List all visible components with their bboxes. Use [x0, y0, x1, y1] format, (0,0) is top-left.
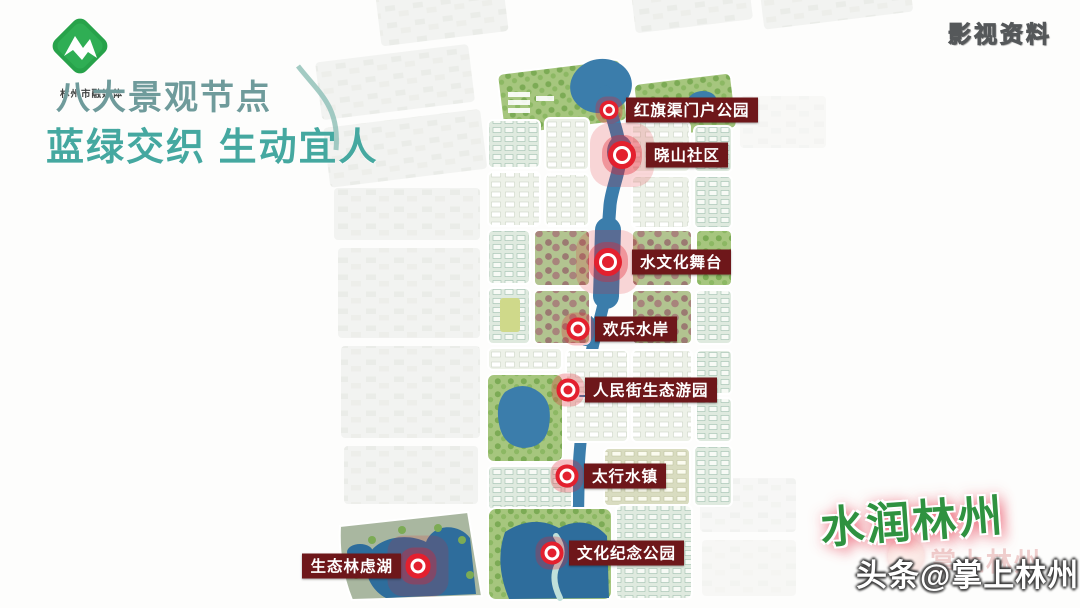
footage-watermark: 影视资料 [948, 15, 1052, 49]
marker-label: 文化纪念公园 [569, 541, 684, 566]
marker-label: 人民街生态游园 [585, 378, 717, 403]
map-pin-icon [574, 325, 583, 334]
marker-label: 生态林虑湖 [302, 554, 401, 579]
toutiao-credit: 头条@掌上林州 [856, 550, 1079, 595]
park-pond [498, 386, 550, 448]
marker-label: 水文化舞台 [632, 250, 731, 275]
peoples-street-blocks [487, 348, 732, 462]
map-pin-icon [563, 472, 572, 481]
marker-label: 欢乐水岸 [595, 317, 677, 342]
map-pin-icon [548, 549, 557, 558]
map-pin-icon [616, 149, 628, 161]
page-title: 八大景观节点 [56, 70, 272, 119]
calligraphy-title: 水润林州 [818, 480, 1006, 557]
map-pin-icon [414, 562, 423, 571]
marker-label: 太行水镇 [584, 464, 666, 489]
page-subtitle: 蓝绿交织 生动宜人 [46, 116, 379, 171]
map-pin-icon [606, 107, 613, 114]
marker-label: 晓山社区 [646, 143, 728, 168]
map-pin-icon [602, 256, 614, 268]
map-pin-icon [564, 386, 573, 395]
video-frame: 红旗渠门户公园 晓山社区 水文化舞台 欢乐水岸 人民街生态游园 太行水镇 文化纪… [0, 0, 1080, 608]
marker-label: 红旗渠门户公园 [626, 98, 758, 123]
